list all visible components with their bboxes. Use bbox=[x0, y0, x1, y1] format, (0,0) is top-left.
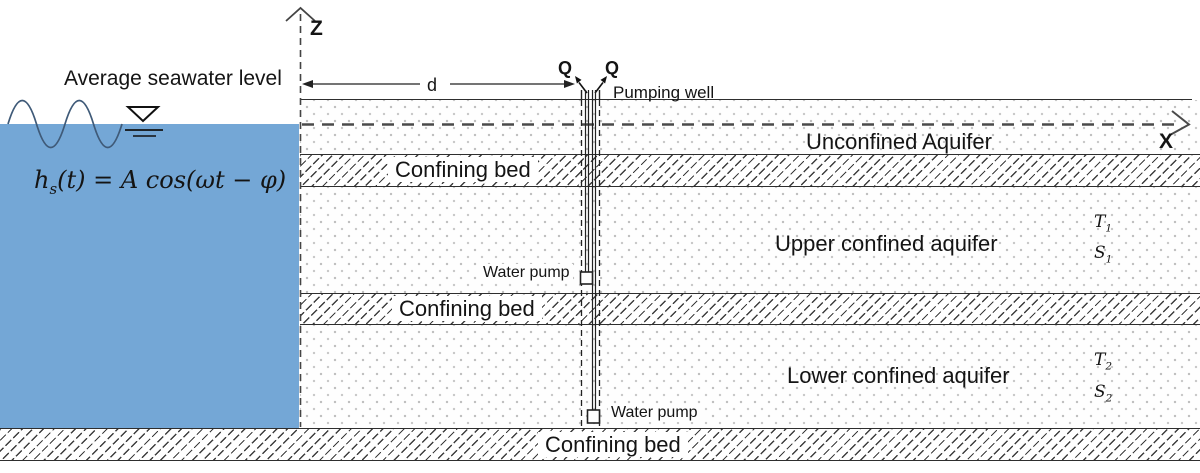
x-axis-label: X bbox=[1159, 130, 1173, 154]
z-axis-label: Z bbox=[310, 17, 323, 41]
s1-base: S bbox=[1094, 243, 1106, 263]
water-pump-upper-label: Water pump bbox=[480, 264, 573, 282]
d-dimension-line bbox=[302, 80, 575, 88]
unconfined-aquifer-label: Unconfined Aquifer bbox=[806, 129, 992, 154]
q-arrow-left bbox=[575, 76, 587, 93]
d-arrowhead-right bbox=[564, 80, 575, 88]
lower-confined-aquifer-label: Lower confined aquifer bbox=[787, 363, 1010, 388]
q-label-right: Q bbox=[605, 58, 619, 79]
q-label-left: Q bbox=[558, 58, 572, 79]
d-arrowhead-left bbox=[302, 80, 313, 88]
s1-sub: 1 bbox=[1106, 253, 1113, 265]
upper-confined-aquifer-label: Upper confined aquifer bbox=[775, 231, 998, 256]
equation-base: h bbox=[34, 166, 49, 194]
t2-base: T bbox=[1094, 350, 1105, 370]
unconfined-aquifer-layer bbox=[300, 100, 1200, 154]
average-seawater-level-label: Average seawater level bbox=[64, 67, 282, 91]
seawater-equation: hs(t) = A cos(ωt − φ) bbox=[34, 167, 286, 198]
upper-confined-aquifer-layer bbox=[300, 187, 1200, 293]
diagram-canvas: Average seawater level hs(t) = A cos(ωt … bbox=[0, 0, 1200, 473]
t1-base: T bbox=[1094, 212, 1105, 232]
confining-bed-3-label: Confining bed bbox=[538, 432, 688, 457]
s2-sub: 2 bbox=[1106, 392, 1113, 404]
storativity-2-label: S2 bbox=[1094, 383, 1112, 405]
t2-sub: 2 bbox=[1105, 360, 1112, 372]
s2-base: S bbox=[1094, 382, 1106, 402]
ground-surface-line bbox=[300, 99, 1192, 100]
equation-rest: (t) = A cos(ωt − φ) bbox=[57, 166, 286, 194]
confining-bed-2-label: Confining bed bbox=[392, 296, 542, 321]
transmissivity-1-label: T1 bbox=[1094, 213, 1112, 235]
lower-confined-aquifer-layer bbox=[300, 325, 1200, 428]
confining-bed-1-label: Confining bed bbox=[388, 157, 538, 182]
storativity-1-label: S1 bbox=[1094, 244, 1112, 266]
water-pump-lower-label: Water pump bbox=[608, 404, 701, 422]
pumping-well-label: Pumping well bbox=[613, 83, 714, 103]
d-distance-label: d bbox=[427, 75, 437, 96]
equation-subscript: s bbox=[49, 180, 57, 198]
transmissivity-2-label: T2 bbox=[1094, 351, 1112, 373]
t1-sub: 1 bbox=[1105, 222, 1112, 234]
